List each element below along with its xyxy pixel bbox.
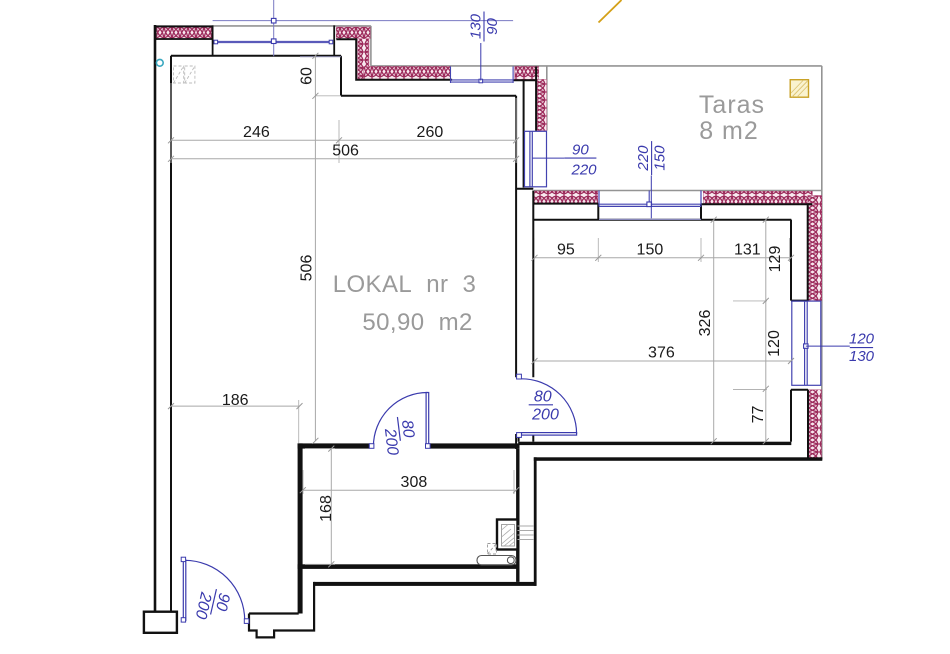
svg-text:90: 90 xyxy=(484,18,501,35)
svg-text:376: 376 xyxy=(648,345,675,362)
svg-text:8 m2: 8 m2 xyxy=(699,117,759,145)
svg-text:326: 326 xyxy=(697,310,714,337)
svg-text:506: 506 xyxy=(332,143,359,160)
svg-text:90: 90 xyxy=(572,141,589,158)
svg-text:80: 80 xyxy=(534,389,552,406)
svg-text:150: 150 xyxy=(637,242,664,259)
svg-text:120: 120 xyxy=(849,331,875,348)
svg-text:Taras: Taras xyxy=(699,91,765,119)
svg-text:150: 150 xyxy=(652,145,669,171)
svg-text:308: 308 xyxy=(401,474,428,491)
svg-text:95: 95 xyxy=(557,242,575,259)
svg-text:260: 260 xyxy=(417,124,444,141)
svg-text:186: 186 xyxy=(222,392,249,409)
svg-text:80: 80 xyxy=(398,419,417,439)
svg-text:200: 200 xyxy=(381,427,401,457)
svg-text:200: 200 xyxy=(531,406,559,423)
svg-text:506: 506 xyxy=(299,255,316,282)
svg-text:77: 77 xyxy=(750,406,767,424)
svg-text:168: 168 xyxy=(318,495,335,522)
svg-text:130: 130 xyxy=(468,13,485,39)
svg-text:131: 131 xyxy=(734,242,761,259)
svg-text:220: 220 xyxy=(635,145,652,172)
svg-text:129: 129 xyxy=(767,246,784,273)
svg-text:LOKAL nr 3: LOKAL nr 3 xyxy=(333,271,477,298)
svg-text:220: 220 xyxy=(570,162,597,179)
svg-text:50,90 m2: 50,90 m2 xyxy=(362,309,472,336)
svg-text:120: 120 xyxy=(766,330,783,357)
svg-text:130: 130 xyxy=(849,348,875,365)
svg-text:246: 246 xyxy=(243,124,270,141)
svg-text:60: 60 xyxy=(299,67,316,85)
